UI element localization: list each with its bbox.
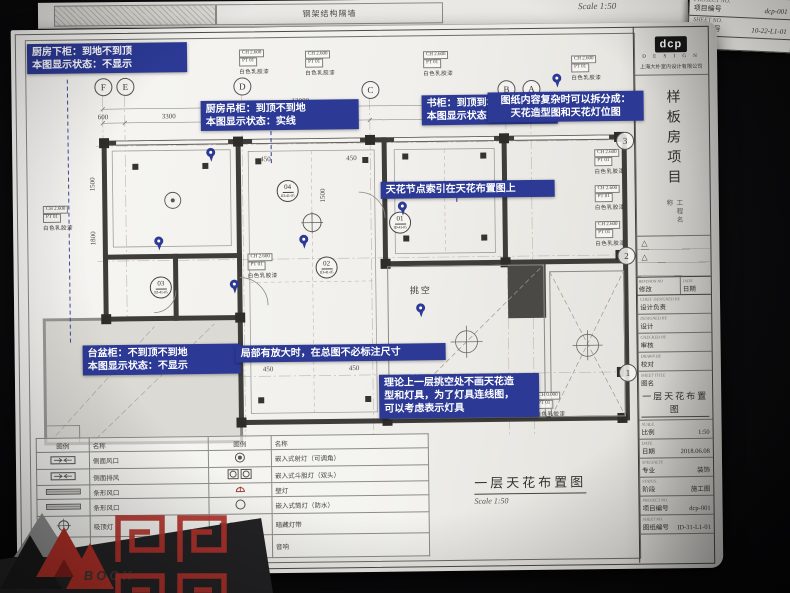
field-label-zh: 图纸编号 — [643, 522, 669, 532]
sheet-no-value: 10-22-L1-01 — [751, 27, 787, 37]
titleblock-field: DESIGNED BY.设计 — [637, 314, 711, 334]
paint-code-cell: PT 01 — [571, 64, 589, 72]
dimension-label: 1800 — [89, 231, 97, 245]
detail-sheet-code: ID-41-05 — [154, 289, 167, 294]
revision-triangle-icon: △ — [641, 240, 647, 248]
legend-item-name: 暗藏灯带 — [272, 512, 429, 535]
paint-code-cell: PT 01 — [594, 157, 612, 165]
red-seal-stamp — [112, 512, 234, 593]
company-name: 上海大朴室内设计有限公司 — [636, 62, 706, 70]
titleblock-field: SHEET NO.图纸编号ID-31-L1-01 — [640, 515, 714, 535]
callout-line: 本图显示状态：不显示 — [88, 359, 236, 374]
ceiling-finish-tag: CH 2.600PT 01白色乳胶漆 — [423, 51, 453, 77]
callout-line: 可以考虑表示灯具 — [384, 401, 534, 416]
titleblock-field: SHEET TITLE图名一层天花布置图 — [638, 371, 713, 421]
field-row: 设计 — [640, 320, 708, 331]
revision-header: REVISION NO 修改 DATE 日期 — [637, 276, 711, 296]
material-label: 白色乳胶漆 — [595, 238, 625, 246]
material-label: 白色乳胶漆 — [305, 68, 335, 76]
detail-sheet-code: ID-41-05 — [281, 193, 294, 198]
legend-header: 图例 — [208, 436, 271, 451]
revision-no-zh: 修改 — [639, 283, 678, 293]
field-value: 一层天花布置图 — [641, 389, 709, 418]
dimension-label: 600 — [98, 113, 109, 121]
material-label: 白色乳胶漆 — [239, 67, 269, 75]
map-pin-icon — [205, 148, 217, 164]
dbl-symbol-icon — [209, 467, 272, 484]
dimension-label: 450 — [263, 365, 274, 373]
ceiling-height-cell: CH 2.600 — [305, 50, 331, 59]
dcp-logo-icon: dcp — [655, 36, 688, 52]
drawing-title-text: 一层天花布置图 — [474, 471, 586, 494]
project-name-vertical: 样板房项目 — [661, 83, 682, 195]
void-label: 挑空 — [410, 283, 432, 296]
ceiling-finish-tag: CH 2.600PT 01白色乳胶漆 — [571, 55, 601, 81]
field-label-zh: 审核 — [641, 340, 654, 350]
ceiling-height-cell: CH 2.600 — [43, 206, 69, 215]
ceiling-finish-tag: CH 2.600PT 01白色乳胶漆 — [594, 149, 624, 175]
map-pin-icon — [397, 201, 409, 217]
revision-rows: △ △ — [636, 235, 710, 277]
field-label-zh: 阶段 — [642, 484, 655, 494]
annotation-callout: 台盆柜：不到顶不到地本图显示状态：不显示 — [83, 344, 241, 376]
titleblock-field: DATE.日期2018.06.08 — [639, 439, 713, 459]
paint-code-cell: PT 01 — [595, 229, 613, 237]
ceiling-height-cell: CH 2.600 — [239, 49, 265, 58]
wall-symbol-icon — [209, 483, 272, 498]
ceiling-height-cell: CH 2.600 — [423, 51, 449, 60]
legend-item-name: 侧面排风 — [90, 467, 209, 484]
material-label: 白色乳胶漆 — [248, 271, 278, 279]
field-label-zh: 校对 — [641, 359, 654, 369]
grid-bubble-letter: E — [116, 78, 134, 96]
callout-line: 本图显示状态：实线 — [206, 114, 354, 129]
field-value: ID-31-L1-01 — [677, 524, 711, 531]
legend-item-name: 嵌入式筒灯（防水） — [272, 495, 429, 514]
grid-bubble-number: 1 — [619, 364, 637, 382]
legend-item-name: 嵌入式斗胆灯（双头） — [272, 465, 429, 483]
field-row: 项目编号dcp-001 — [643, 502, 711, 513]
grid-bubble-letter: C — [361, 81, 379, 99]
annotation-callout: 厨房下柜：到地不到顶本图显示状态：不显示 — [27, 42, 187, 74]
detail-sheet-code: ID-41-05 — [320, 269, 333, 274]
field-row: 审核 — [641, 339, 709, 350]
ceiling-finish-tag: CH 2.600PT 01白色乳胶漆 — [305, 50, 335, 76]
detail-reference-bubble: 04ID-41-05 — [277, 180, 299, 202]
material-label: 白色乳胶漆 — [595, 202, 625, 210]
field-value: 装饰 — [697, 464, 710, 474]
vent-symbol-icon — [37, 469, 90, 486]
field-value: dcp-001 — [689, 505, 710, 512]
field-row: 阶段施工图 — [642, 483, 710, 494]
callout-line: 天花节点索引在天花布置图上 — [386, 182, 550, 197]
dimension-label: 450 — [260, 155, 271, 163]
legend-item-name: 嵌入式射灯（可调角） — [271, 448, 428, 467]
annotation-callout: 局部有放大时，在总图不必标注尺寸 — [236, 343, 446, 363]
material-label: 白色乳胶漆 — [423, 68, 453, 76]
map-pin-icon — [415, 303, 427, 319]
revision-triangle-icon: △ — [641, 254, 647, 262]
project-no-zh: 项目编号 — [693, 3, 721, 14]
map-pin-icon — [551, 74, 563, 90]
map-pin-icon — [298, 235, 310, 251]
field-label-zh: 日期 — [642, 446, 655, 456]
callout-line: 本图显示状态：不显示 — [32, 57, 182, 72]
revision-date-zh: 日期 — [683, 283, 709, 293]
map-pin-icon — [229, 280, 241, 296]
grid-bubble-number: 2 — [617, 247, 635, 265]
titleblock-field: CHIEF DESIGNED BY.设计负责 — [637, 295, 711, 315]
drawing-sheet: 一层天花布置图 Scale 1:50 图例名称图例名称 侧面风口嵌入式射灯（可调… — [11, 22, 724, 577]
photo-scene: 钢架结构隔墙 Scale 1:50 PROJECT NO. 项目编号 dcp-0… — [0, 0, 790, 593]
detail-sheet-code: ID-41-05 — [393, 224, 406, 229]
annotation-callout: 理论上一层挑空处不画天花造型和灯具，为了灯具连线图，可以考虑表示灯具 — [379, 373, 540, 419]
field-row: 图纸编号ID-31-L1-01 — [643, 521, 711, 532]
legend-cell-label: 钢架结构隔墙 — [216, 2, 443, 25]
field-label-zh: 比例 — [642, 427, 655, 437]
ceiling-height-cell: CH 2.600 — [595, 221, 621, 230]
ceiling-height-cell: CH 2.600 — [247, 253, 273, 262]
field-label-zh: 专业 — [642, 465, 655, 475]
legend-header: 名称 — [89, 436, 208, 451]
callout-line: 局部有放大时，在总图不必标注尺寸 — [241, 345, 441, 361]
ceiling-height-cell: CH 2.600 — [571, 55, 597, 64]
ceiling-finish-tag: CH 2.600PT 01白色乳胶漆 — [239, 49, 269, 75]
detail-number: 02 — [321, 260, 332, 269]
annotation-callout: 天花节点索引在天花布置图上 — [381, 180, 555, 199]
field-value: 2018.06.08 — [681, 448, 710, 455]
vent-symbol-icon — [36, 452, 89, 470]
field-row: 日期2018.06.08 — [642, 445, 710, 456]
scale-note: Scale 1:50 — [578, 1, 616, 11]
field-value: 施工图 — [691, 483, 711, 493]
detail-reference-bubble: 02ID-41-05 — [315, 256, 337, 278]
titleblock-field: PROJECT NO.项目编号dcp-001 — [639, 496, 713, 516]
ceiling-height-cell: CH 2.600 — [595, 185, 621, 194]
legend-header: 图例 — [36, 438, 89, 453]
callout-line: 天花造型图和天花灯位图 — [493, 106, 639, 121]
material-label: 白色乳胶漆 — [594, 166, 624, 174]
grid-bubble-number: 3 — [616, 132, 634, 150]
dimension-label: 450 — [349, 364, 360, 372]
titleblock-field: STATUS.阶段施工图 — [639, 477, 713, 497]
grid-bubble-letter: D — [233, 77, 251, 95]
material-label: 白色乳胶漆 — [571, 73, 601, 81]
paint-code-cell: PT 01 — [248, 261, 266, 269]
field-label-zh: 图名 — [641, 377, 709, 388]
firm-logo: dcp D E S I G N 上海大朴室内设计有限公司 — [634, 26, 709, 76]
callout-line: 型和灯具，为了灯具连线图， — [384, 388, 534, 403]
material-label: 白色乳胶漆 — [535, 409, 565, 417]
drawing-title-scale: Scale 1:50 — [474, 495, 586, 505]
project-no-value: dcp-001 — [764, 7, 787, 16]
titleblock-field: DRAWN BY.校对 — [638, 352, 712, 372]
terrace-area — [44, 318, 242, 444]
ceiling-finish-tag: CH 2.600PT 01白色乳胶漆 — [595, 185, 625, 211]
paint-code-cell: PT 01 — [305, 59, 323, 67]
paint-code-cell: PT 01 — [423, 59, 441, 67]
logo-subtitle: D E S I G N — [634, 54, 708, 60]
field-value: 1:50 — [698, 429, 710, 436]
field-row: 比例1:50 — [642, 426, 710, 437]
field-label-zh: 设计 — [640, 321, 653, 331]
detail-reference-bubble: 03ID-41-05 — [150, 276, 172, 298]
annotation-callout: 图纸内容复杂时可以拆分成：天花造型图和天花灯位图 — [487, 91, 643, 123]
title-block: dcp D E S I G N 上海大朴室内设计有限公司 样板房项目 工程名称 … — [633, 26, 715, 563]
project-name-label: 工程名称 — [663, 199, 683, 231]
map-pin-icon — [153, 236, 165, 252]
dimension-label: 1500 — [319, 188, 327, 202]
drawing-title: 一层天花布置图 Scale 1:50 — [474, 471, 586, 505]
detail-number: 04 — [282, 184, 293, 193]
ceiling-finish-tag: CH 2.600PT 01白色乳胶漆 — [595, 221, 625, 247]
annotation-callout: 厨房吊柜：到顶不到地本图显示状态：实线 — [201, 99, 359, 131]
dimension-label: 3300 — [162, 112, 176, 120]
dimension-label: 1500 — [88, 177, 96, 191]
detail-number: 03 — [155, 281, 166, 290]
legend-item-name: 侧面风口 — [89, 450, 208, 468]
ceiling-finish-tag: CH 2.600PT 01白色乳胶漆 — [247, 253, 277, 279]
field-row: 设计负责 — [640, 301, 708, 312]
field-label-zh: 设计负责 — [640, 301, 666, 311]
shaft — [508, 264, 547, 318]
paint-code-cell: PT 01 — [43, 214, 61, 222]
ceiling-lamps — [165, 191, 324, 236]
ceiling-height-cell: CH 2.600 — [594, 149, 620, 158]
titleblock-field: CHECKED BY.审核 — [637, 333, 711, 353]
ceiling-finish-tag: CH 2.600PT 01白色乳胶漆 — [43, 206, 73, 232]
titleblock-field: SPECIALTY.专业装饰 — [639, 458, 713, 478]
field-row: 专业装饰 — [642, 464, 710, 475]
dimension-label: 450 — [346, 154, 357, 162]
field-label-zh: 项目编号 — [643, 503, 669, 513]
grid-bubble-letter: F — [94, 78, 112, 96]
legend-hatch-swatch — [54, 4, 216, 26]
field-row: 校对 — [641, 358, 709, 369]
paint-code-cell: PT 01 — [239, 58, 257, 66]
downlight-symbol-icon — [208, 450, 271, 468]
titleblock-field: SCALE.比例1:50 — [639, 420, 713, 440]
legend-item-name: 音响 — [272, 533, 429, 558]
material-label: 白色乳胶漆 — [43, 223, 73, 231]
ceiling-finish-tag: CH 0.000PT 01白色乳胶漆 — [535, 392, 565, 418]
paint-code-cell: PT 01 — [595, 193, 613, 201]
